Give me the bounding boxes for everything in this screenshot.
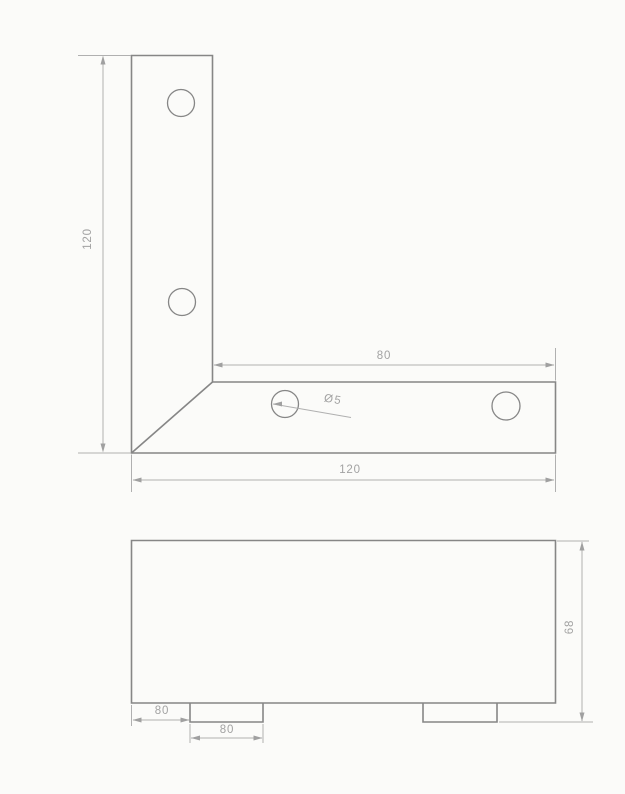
- dimension-arrow: [101, 56, 106, 65]
- drawing-sheet: 120 80 120 Ø5 80 80 68: [0, 0, 625, 794]
- dim-label-top-view-overall-width: 120: [339, 464, 361, 476]
- part-outline: [423, 703, 497, 722]
- dimension-arrow: [580, 542, 585, 551]
- dimension-arrow: [191, 736, 200, 741]
- part-outline: [132, 56, 556, 454]
- part-outline: [190, 703, 263, 722]
- dimension-arrow: [214, 363, 223, 368]
- page: { "labels": { "top_view_leg_length_verti…: [0, 0, 625, 794]
- front-view-angle-bracket: [132, 541, 594, 744]
- part-outline: [132, 541, 556, 704]
- dim-label-front-view-height: 68: [564, 620, 576, 634]
- hole-circle: [168, 90, 195, 117]
- dimension-arrow: [254, 736, 263, 741]
- top-view-angle-bracket: [78, 56, 556, 493]
- dimension-arrow: [546, 478, 555, 483]
- dim-label-top-view-inner-length: 80: [377, 350, 391, 362]
- dimension-arrow: [546, 363, 555, 368]
- part-outline: [132, 382, 213, 453]
- dim-label-front-view-left-offset: 80: [155, 705, 169, 717]
- dimension-arrow: [580, 713, 585, 722]
- dimension-arrow: [181, 718, 190, 723]
- hole-circle: [169, 289, 196, 316]
- dim-label-top-view-leg-length-vertical: 120: [82, 228, 94, 250]
- dimension-arrow: [273, 402, 282, 407]
- dim-label-front-view-tab-width: 80: [220, 724, 234, 736]
- dimension-arrow: [133, 478, 142, 483]
- hole-circle: [492, 392, 520, 420]
- dimension-arrow: [133, 718, 142, 723]
- dimension-arrow: [101, 444, 106, 453]
- drawing-linework: [0, 0, 625, 794]
